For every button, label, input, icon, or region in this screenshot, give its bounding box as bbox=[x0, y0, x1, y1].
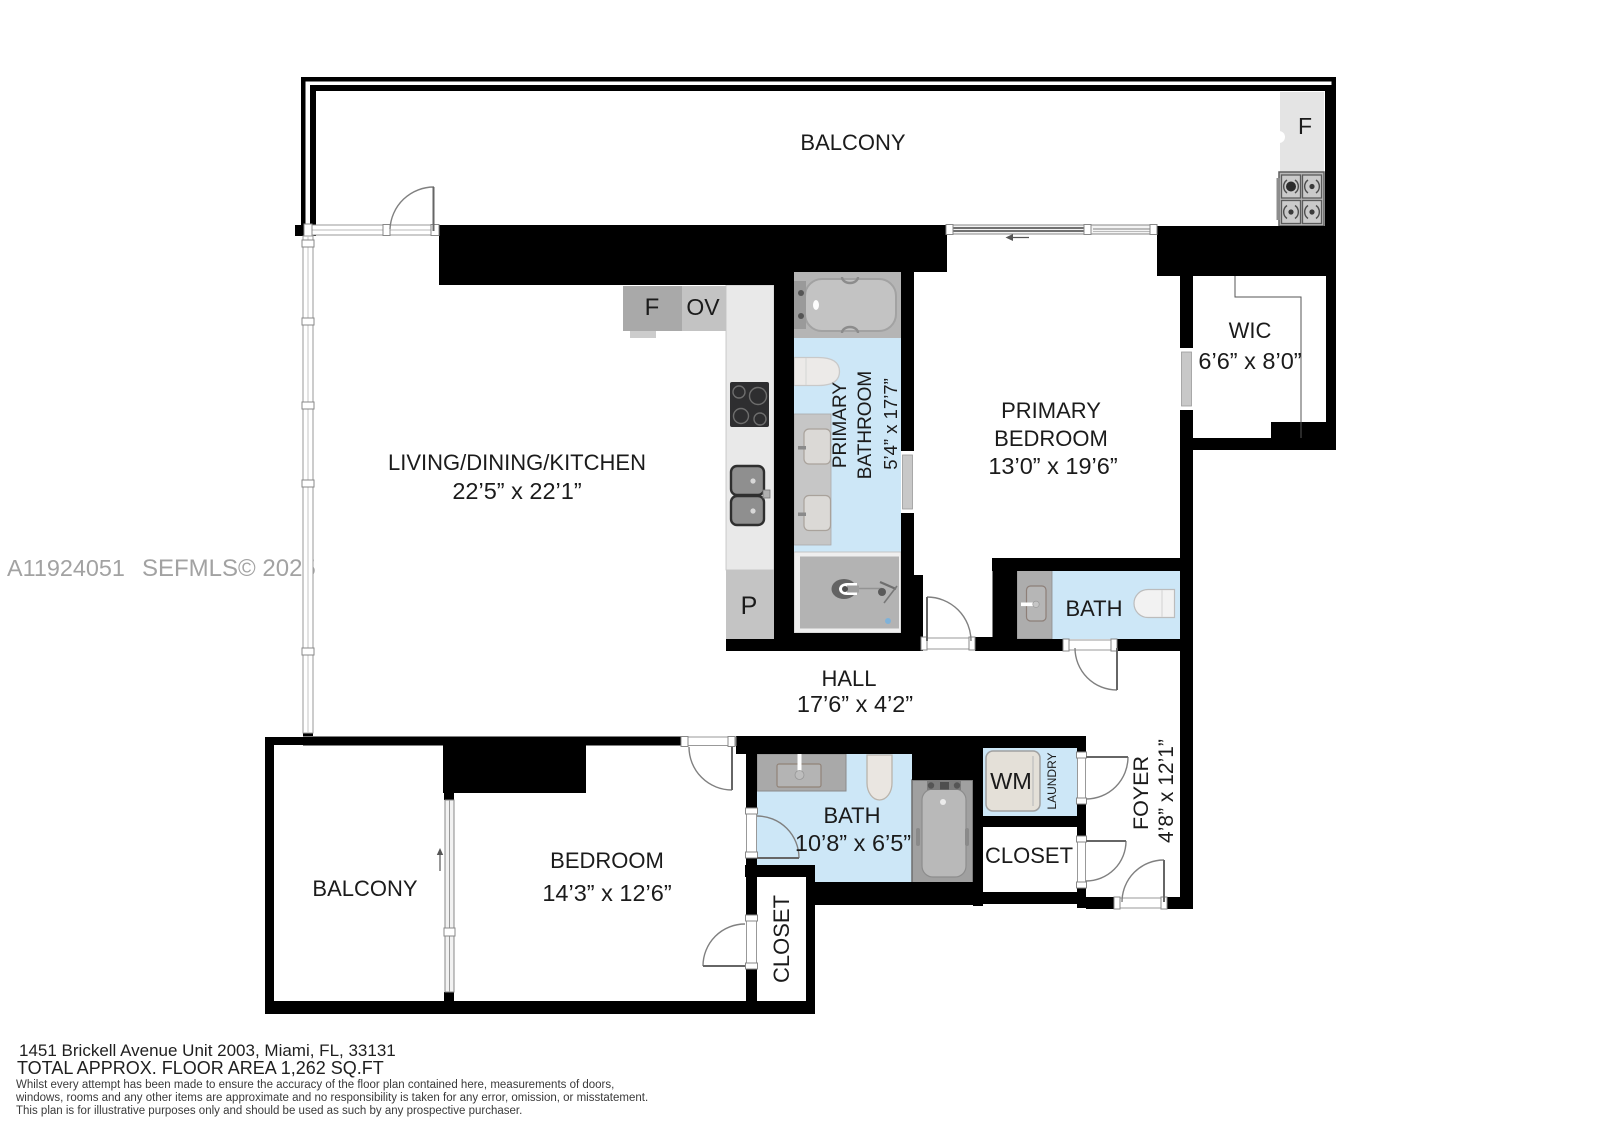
svg-text:LAUNDRY: LAUNDRY bbox=[1045, 752, 1059, 809]
svg-text:BEDROOM: BEDROOM bbox=[994, 426, 1108, 451]
svg-text:13’0” x 19’6”: 13’0” x 19’6” bbox=[988, 453, 1117, 479]
svg-text:P: P bbox=[741, 592, 758, 620]
svg-text:WIC: WIC bbox=[1229, 318, 1272, 343]
svg-text:CLOSET: CLOSET bbox=[985, 843, 1073, 868]
svg-text:BATHROOM: BATHROOM bbox=[855, 371, 876, 479]
svg-text:BALCONY: BALCONY bbox=[312, 876, 417, 901]
svg-text:windows, rooms and any other i: windows, rooms and any other items are a… bbox=[15, 1092, 648, 1104]
svg-text:BALCONY: BALCONY bbox=[800, 130, 905, 155]
svg-text:A11924051: A11924051 bbox=[7, 555, 125, 581]
svg-text:10’8” x 6’5”: 10’8” x 6’5” bbox=[795, 830, 911, 856]
svg-text:WM: WM bbox=[990, 768, 1032, 794]
svg-text:22’5” x 22’1”: 22’5” x 22’1” bbox=[452, 478, 581, 504]
svg-text:HALL: HALL bbox=[821, 666, 876, 691]
svg-text:BATH: BATH bbox=[823, 803, 880, 828]
svg-text:BATH: BATH bbox=[1065, 596, 1122, 621]
svg-text:4’8” x 12’1”: 4’8” x 12’1” bbox=[1155, 739, 1178, 843]
svg-text:This plan is for illustrative: This plan is for illustrative purposes o… bbox=[16, 1105, 522, 1117]
svg-text:14’3” x 12’6”: 14’3” x 12’6” bbox=[542, 880, 671, 906]
svg-text:SEFMLS© 2025: SEFMLS© 2025 bbox=[142, 555, 316, 582]
svg-text:Whilst every attempt has been: Whilst every attempt has been made to en… bbox=[16, 1079, 614, 1091]
svg-text:17’6” x 4’2”: 17’6” x 4’2” bbox=[797, 691, 913, 717]
svg-text:PRIMARY: PRIMARY bbox=[830, 382, 851, 469]
svg-text:F: F bbox=[1298, 113, 1312, 139]
svg-text:5’4” x 17’7”: 5’4” x 17’7” bbox=[880, 378, 901, 470]
svg-text:FOYER: FOYER bbox=[1129, 756, 1153, 830]
svg-text:CLOSET: CLOSET bbox=[769, 895, 794, 983]
svg-text:BEDROOM: BEDROOM bbox=[550, 848, 664, 873]
svg-text:LIVING/DINING/KITCHEN: LIVING/DINING/KITCHEN bbox=[388, 450, 646, 475]
svg-text:OV: OV bbox=[686, 294, 720, 320]
svg-text:6’6” x 8’0”: 6’6” x 8’0” bbox=[1198, 348, 1301, 374]
svg-text:F: F bbox=[645, 294, 660, 321]
svg-text:TOTAL APPROX. FLOOR AREA 1,262: TOTAL APPROX. FLOOR AREA 1,262 SQ.FT bbox=[17, 1058, 384, 1078]
svg-text:PRIMARY: PRIMARY bbox=[1001, 398, 1101, 423]
